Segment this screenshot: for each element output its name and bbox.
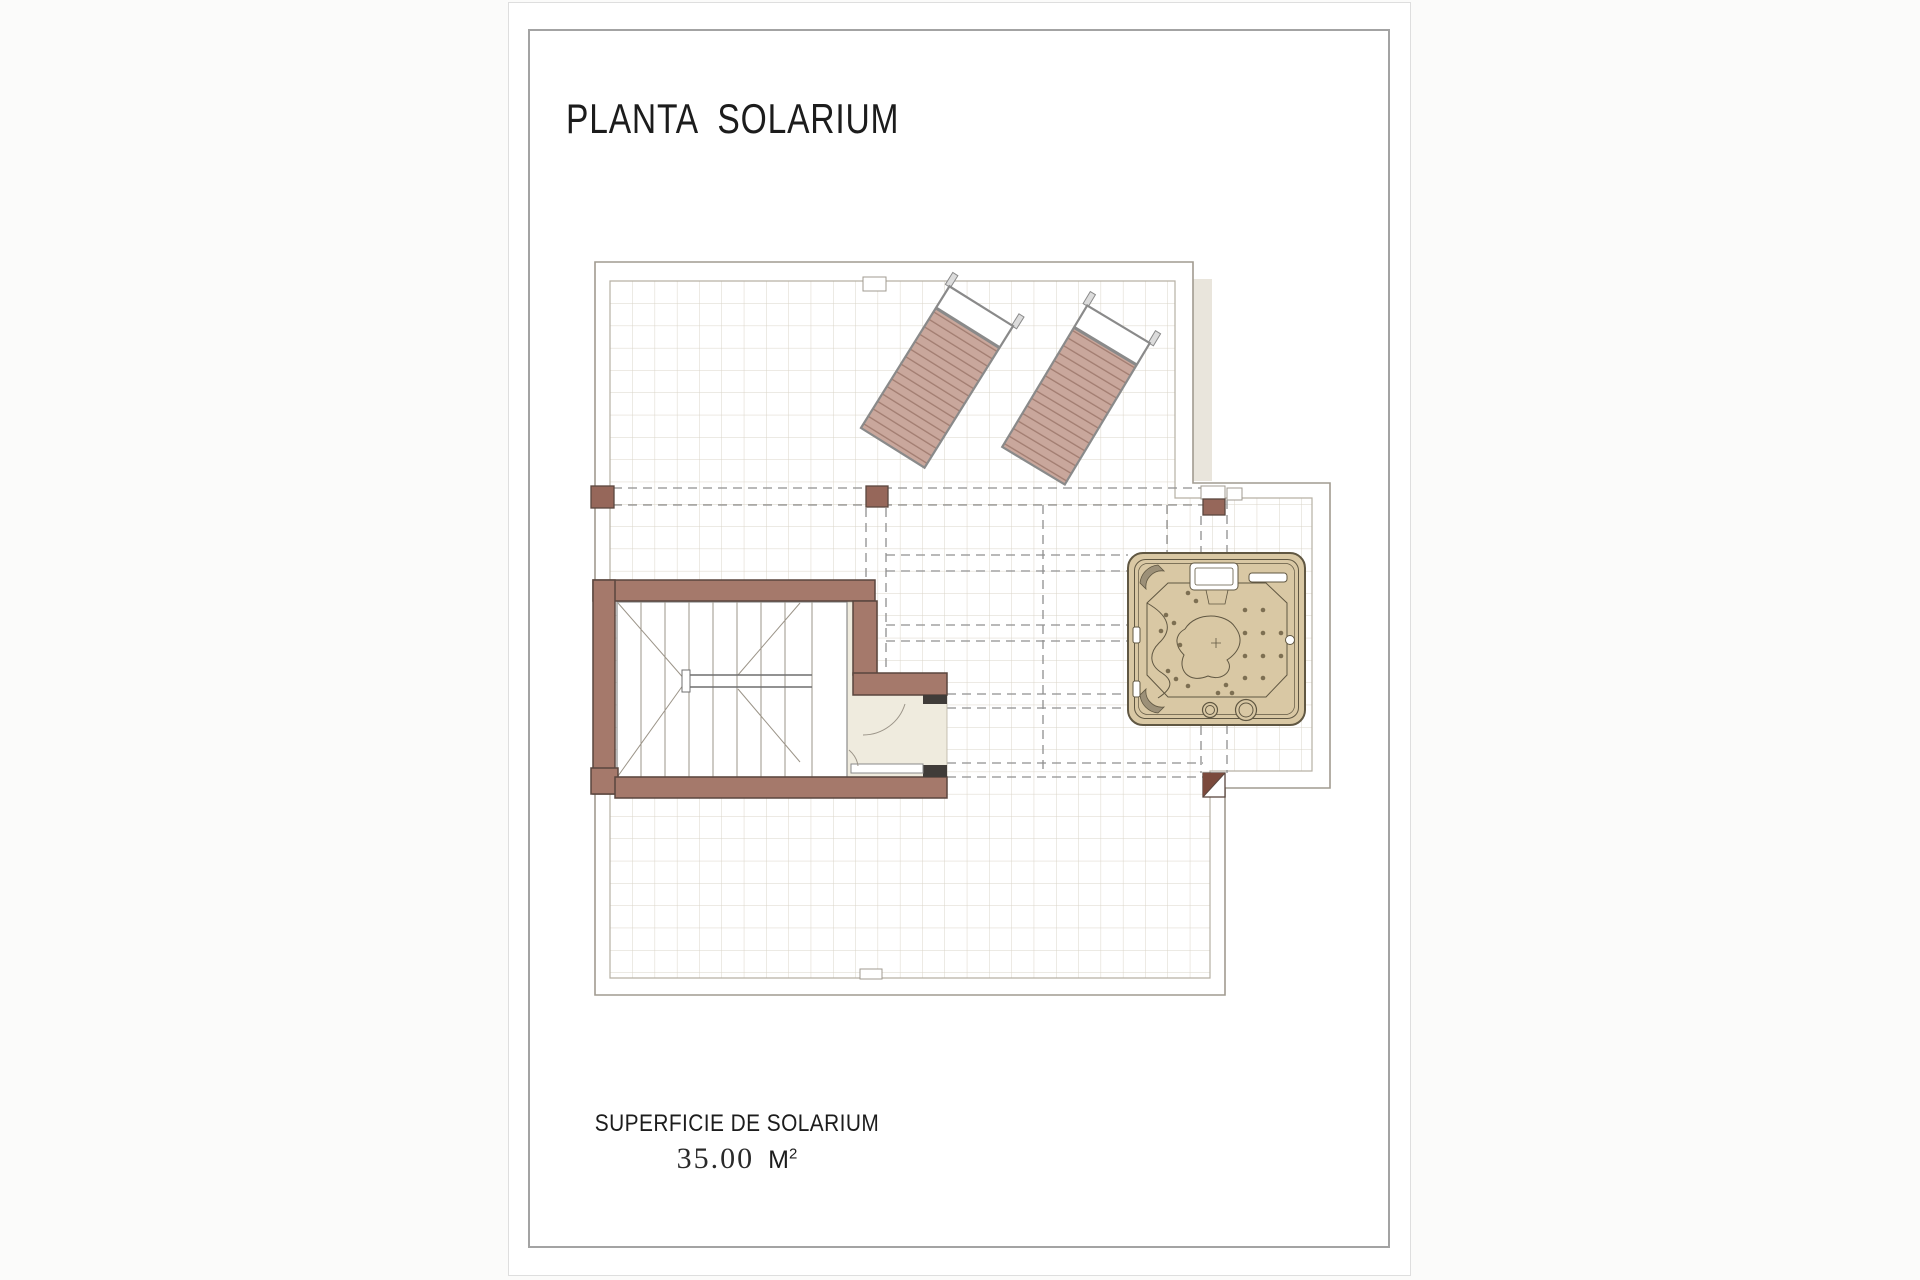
- beam-end-marker: [1227, 488, 1242, 500]
- area-annotation: SUPERFICIE DE SOLARIUM 35.00M2: [517, 1110, 957, 1176]
- jacuzzi: [1128, 553, 1305, 725]
- wall-left: [593, 580, 615, 794]
- grid-notch-top: [863, 277, 886, 291]
- area-label: SUPERFICIE DE SOLARIUM: [546, 1110, 929, 1138]
- door-leaf: [851, 764, 923, 773]
- wall-top: [593, 580, 875, 601]
- area-value: 35.00M2: [517, 1142, 957, 1176]
- pillar-center: [866, 486, 888, 507]
- pillar-right-top: [1203, 499, 1225, 515]
- jacuzzi-control-panel: [1190, 563, 1238, 590]
- area-number: 35.00: [677, 1142, 755, 1175]
- grid-notch-bottom: [860, 969, 882, 979]
- wall-bottom: [615, 777, 947, 798]
- drawing-title: PLANTA SOLARIUM: [566, 95, 899, 143]
- parapet-shadow: [1193, 279, 1212, 481]
- floor-plan-canvas: [0, 0, 1920, 1280]
- jacuzzi-jet-port: [1286, 636, 1295, 645]
- door-jamb: [923, 765, 947, 777]
- pillar-left: [591, 486, 614, 508]
- wall-corner-block: [591, 768, 618, 794]
- wall-right: [853, 601, 877, 675]
- beam-end-marker: [1201, 486, 1225, 499]
- door-jamb: [923, 695, 947, 704]
- jacuzzi-skimmer: [1249, 573, 1287, 582]
- wall-stub: [853, 673, 947, 695]
- area-unit: M2: [768, 1146, 797, 1174]
- pillar-right-bottom: [1203, 773, 1225, 797]
